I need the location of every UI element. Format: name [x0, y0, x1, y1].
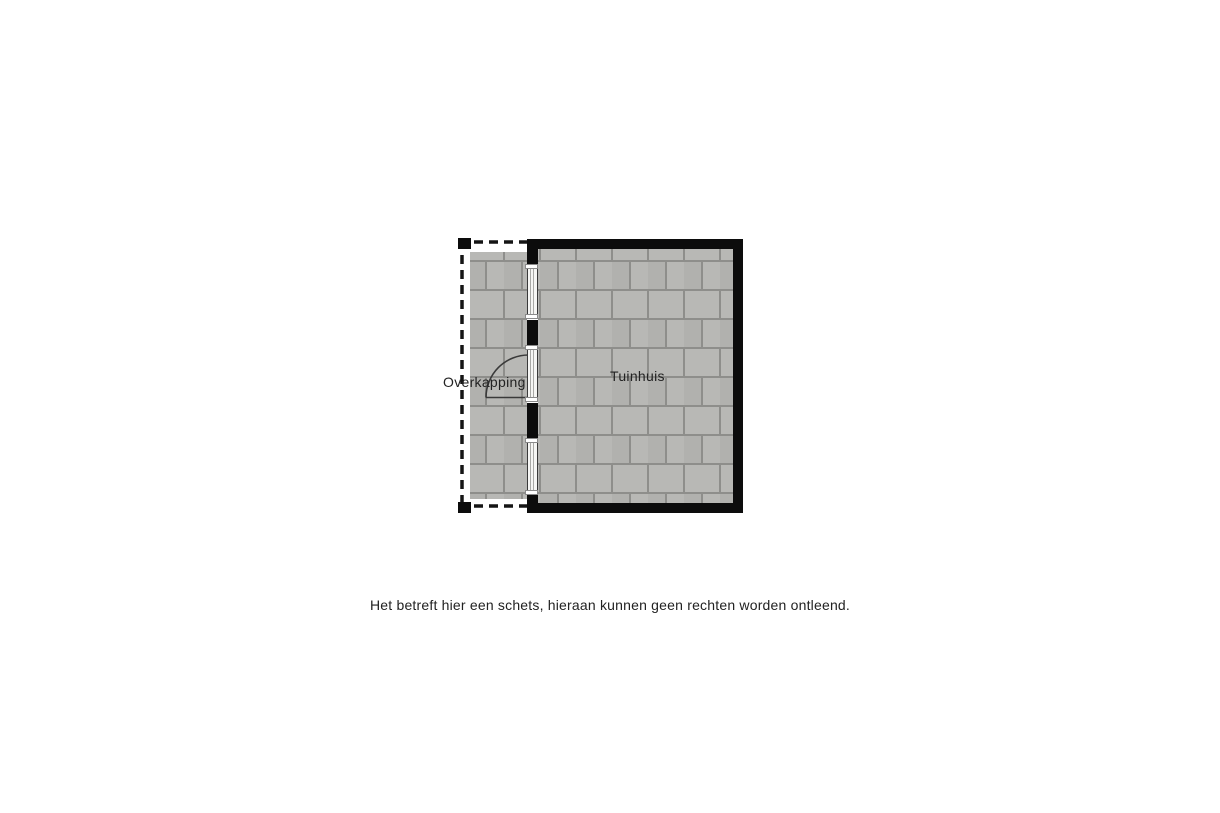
floorplan: Overkapping Tuinhuis: [0, 0, 1220, 813]
window-bottom: [527, 443, 538, 490]
window-top: [527, 269, 538, 314]
disclaimer-text: Het betreft hier een schets, hieraan kun…: [0, 597, 1220, 613]
tuinhuis-label: Tuinhuis: [610, 368, 665, 384]
overkapping-post-bottom-left: [458, 502, 471, 513]
sill-4: [525, 397, 538, 402]
dividing-wall-pier-4: [527, 495, 538, 513]
overkapping-post-top-left: [458, 238, 471, 249]
tuinhuis-wall-top: [527, 239, 743, 249]
sill-6: [525, 490, 538, 495]
sill-1: [525, 264, 538, 269]
tuinhuis-wall-bottom: [527, 503, 743, 513]
dividing-wall-pier-3: [527, 403, 538, 438]
page: { "floorplan": { "labels": { "overkappin…: [0, 0, 1220, 813]
overkapping-label: Overkapping: [443, 374, 526, 390]
dividing-wall-pier-2: [527, 320, 538, 345]
door-glazed-panel: [527, 350, 538, 397]
dividing-wall-pier-1: [527, 239, 538, 265]
sill-2: [525, 314, 538, 319]
sill-5: [525, 438, 538, 443]
tuinhuis-wall-right: [733, 239, 743, 513]
sill-3: [525, 345, 538, 350]
